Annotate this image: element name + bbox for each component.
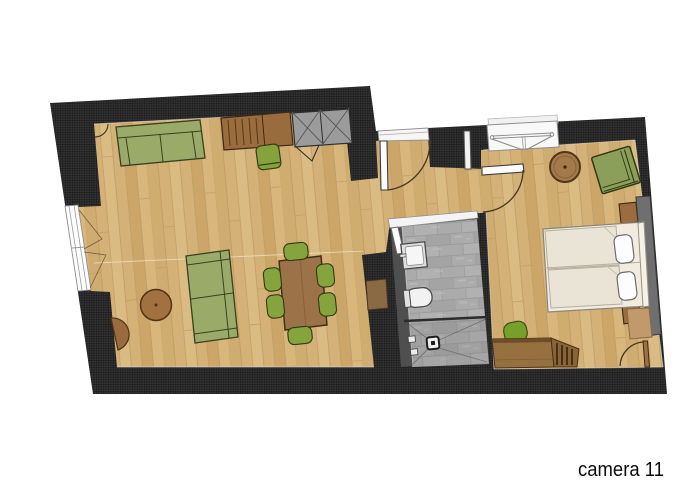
svg-text:camera 11: camera 11 — [578, 459, 664, 481]
